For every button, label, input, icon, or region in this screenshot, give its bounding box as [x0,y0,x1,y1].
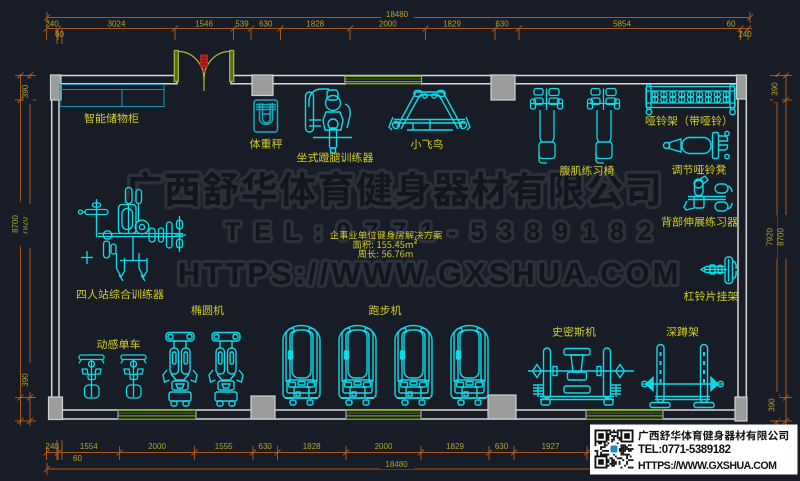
svg-text:630: 630 [259,442,273,451]
svg-text:HTTPS://WWW.GXSHUA.COM: HTTPS://WWW.GXSHUA.COM [638,460,777,472]
svg-text:8700: 8700 [777,228,786,246]
svg-text:1927: 1927 [542,442,560,451]
svg-text:240: 240 [738,30,752,39]
svg-text:1554: 1554 [80,442,98,451]
svg-text:TEL:0771-5389182: TEL:0771-5389182 [225,218,666,246]
svg-text:1546: 1546 [195,20,213,29]
svg-text:1829: 1829 [446,442,464,451]
svg-text:HTTPS://WWW.GXSHUA.COM: HTTPS://WWW.GXSHUA.COM [178,256,681,291]
svg-text:630: 630 [495,442,509,451]
svg-text:8700: 8700 [11,215,20,233]
svg-text:3024: 3024 [108,20,126,29]
svg-text:60: 60 [73,454,82,463]
svg-text:5854: 5854 [613,20,631,29]
svg-text:390: 390 [21,373,30,387]
svg-text:240: 240 [45,20,59,29]
svg-text:60: 60 [727,20,736,29]
svg-text:630: 630 [259,20,273,29]
svg-text:390: 390 [21,84,30,98]
svg-text:18480: 18480 [385,460,408,469]
svg-text:539: 539 [235,20,249,29]
svg-text:240: 240 [46,442,60,451]
svg-text:2000: 2000 [148,442,166,451]
svg-text:1828: 1828 [303,442,321,451]
svg-text:TEL:0771-5389182: TEL:0771-5389182 [638,444,731,456]
svg-text:60: 60 [55,30,64,39]
svg-text:2000: 2000 [375,442,393,451]
svg-text:1555: 1555 [215,442,233,451]
svg-text:390: 390 [771,82,780,96]
svg-text:1829: 1829 [443,20,461,29]
svg-text:390: 390 [768,398,777,412]
svg-text:2000: 2000 [379,20,397,29]
svg-text:7920: 7920 [766,228,775,246]
svg-text:18480: 18480 [386,10,409,19]
svg-text:630: 630 [495,20,509,29]
svg-text:1828: 1828 [306,20,324,29]
